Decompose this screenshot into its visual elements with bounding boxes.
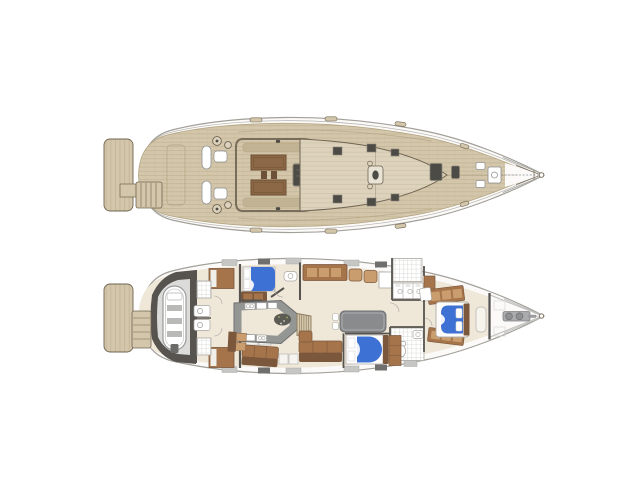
vanity-fitting <box>416 284 421 287</box>
wardrobe-door <box>254 294 263 301</box>
sideboard-door <box>307 268 317 277</box>
deck-locker <box>344 366 359 372</box>
helm-pedestal-port <box>202 146 211 169</box>
dining-chair <box>333 323 339 330</box>
counter-clutter <box>274 314 291 326</box>
deck-hatch <box>333 147 342 155</box>
clutter-dot <box>278 316 280 318</box>
crew-shower <box>197 338 211 355</box>
locker-door <box>431 291 441 301</box>
settee-cushion <box>236 333 246 342</box>
dinghy-thwart <box>167 305 182 311</box>
clutter-dot <box>286 317 288 319</box>
locker-door <box>452 289 462 299</box>
bowsprit-tip <box>539 173 544 178</box>
dining-table <box>340 311 386 332</box>
crew-shower <box>197 281 211 298</box>
settee-back <box>227 332 236 352</box>
transom-steps <box>136 182 162 208</box>
page-background <box>0 0 640 480</box>
mid-cabin-starboard <box>344 334 402 369</box>
dining-chair <box>333 314 339 321</box>
vanity <box>284 272 297 282</box>
deck-locker <box>286 258 301 264</box>
locker <box>289 354 298 364</box>
bed-mattress-blue <box>251 267 275 291</box>
deck-hatch <box>391 194 399 201</box>
sofa-seat <box>299 341 342 353</box>
sofa-back <box>299 352 342 362</box>
locker-door <box>441 290 451 300</box>
pillow <box>244 280 250 289</box>
deck-hatch <box>375 365 387 371</box>
headboard <box>383 335 389 364</box>
swim-platform <box>104 284 133 352</box>
sink-bowl <box>408 289 412 293</box>
galley-appliance <box>257 303 267 309</box>
bed-mattress-blue <box>357 337 382 363</box>
windlass-gypsy <box>516 313 523 320</box>
wardrobe-door <box>244 294 253 301</box>
transom-steps <box>132 311 151 348</box>
deck-hatch <box>367 198 376 206</box>
platform-bracket <box>120 184 138 197</box>
cabin-wardrobe <box>389 336 401 366</box>
steps-block <box>132 311 151 348</box>
clutter-dot <box>280 323 282 325</box>
berth-seat <box>242 345 279 359</box>
cleat <box>250 228 262 232</box>
pillow <box>348 351 355 361</box>
windlass-shaft <box>528 315 536 318</box>
vanity-fitting <box>406 284 411 287</box>
winch-center <box>216 208 219 211</box>
winch <box>225 202 232 209</box>
deck-locker <box>404 361 417 367</box>
cockpit-bench-port <box>243 143 309 152</box>
pillow <box>456 309 462 319</box>
cleat <box>325 229 337 233</box>
bathroom-sink <box>413 331 423 339</box>
cockpit-bench-starboard <box>243 198 309 207</box>
dinghy-thwart <box>167 331 182 337</box>
sofa-return <box>299 331 312 342</box>
foredeck-hatch <box>430 164 442 181</box>
cleat <box>250 118 262 122</box>
mast-section <box>372 170 378 179</box>
helm-pedestal-starboard <box>202 181 211 204</box>
settee-cushion <box>236 342 246 351</box>
dinghy-thwart <box>167 318 182 324</box>
bowsprit-tip <box>539 314 543 318</box>
pillow <box>244 269 250 278</box>
deck-hatch <box>391 149 399 156</box>
clutter-dot <box>283 320 285 322</box>
steps-block <box>136 182 162 208</box>
deck-locker <box>222 260 237 266</box>
winch <box>225 142 232 149</box>
corner-unit <box>419 287 432 301</box>
mast-winch <box>368 161 373 166</box>
armchair <box>364 271 377 283</box>
deck-hatch <box>375 262 387 268</box>
cleat <box>395 223 406 228</box>
dinghy-bow-seat <box>167 293 182 300</box>
fridge-cabinet <box>379 272 393 288</box>
windlass-gypsy <box>506 313 513 320</box>
aft-berth <box>241 345 278 367</box>
dinghy <box>163 286 186 353</box>
sideboard-door <box>319 268 329 277</box>
deck-hatch <box>333 195 342 203</box>
sink-bowl <box>197 308 202 313</box>
locker <box>279 354 288 364</box>
galley-appliance <box>268 303 277 309</box>
foredeck-hatch <box>452 166 460 179</box>
deck-hatch <box>258 259 270 265</box>
sink-bowl <box>398 289 402 293</box>
owner-bench <box>476 307 486 332</box>
swim-platform <box>104 139 133 211</box>
winch-center <box>216 140 219 143</box>
deck-hatch <box>367 144 376 152</box>
bow-locker <box>476 181 485 188</box>
table-console <box>271 171 277 179</box>
outboard-motor <box>171 344 179 353</box>
yacht-layout-drawing <box>0 0 640 480</box>
vanity-fitting <box>396 284 401 287</box>
helm-seat-port <box>214 151 227 162</box>
sink-bowl <box>197 322 202 327</box>
armchair <box>349 269 362 281</box>
cleat <box>395 121 406 126</box>
windlass-housing <box>488 167 501 183</box>
cleat <box>325 117 337 121</box>
pillow <box>348 338 355 348</box>
deck-hatch <box>258 368 270 374</box>
helm-seat-starboard <box>214 188 227 199</box>
mast-winch <box>368 184 373 189</box>
bow-locker <box>476 163 485 170</box>
headboard <box>464 304 470 336</box>
deck-locker <box>286 368 301 374</box>
shower-floor <box>393 259 422 282</box>
sideboard-door <box>331 268 341 277</box>
table-console <box>261 171 267 179</box>
pillow <box>456 322 462 332</box>
